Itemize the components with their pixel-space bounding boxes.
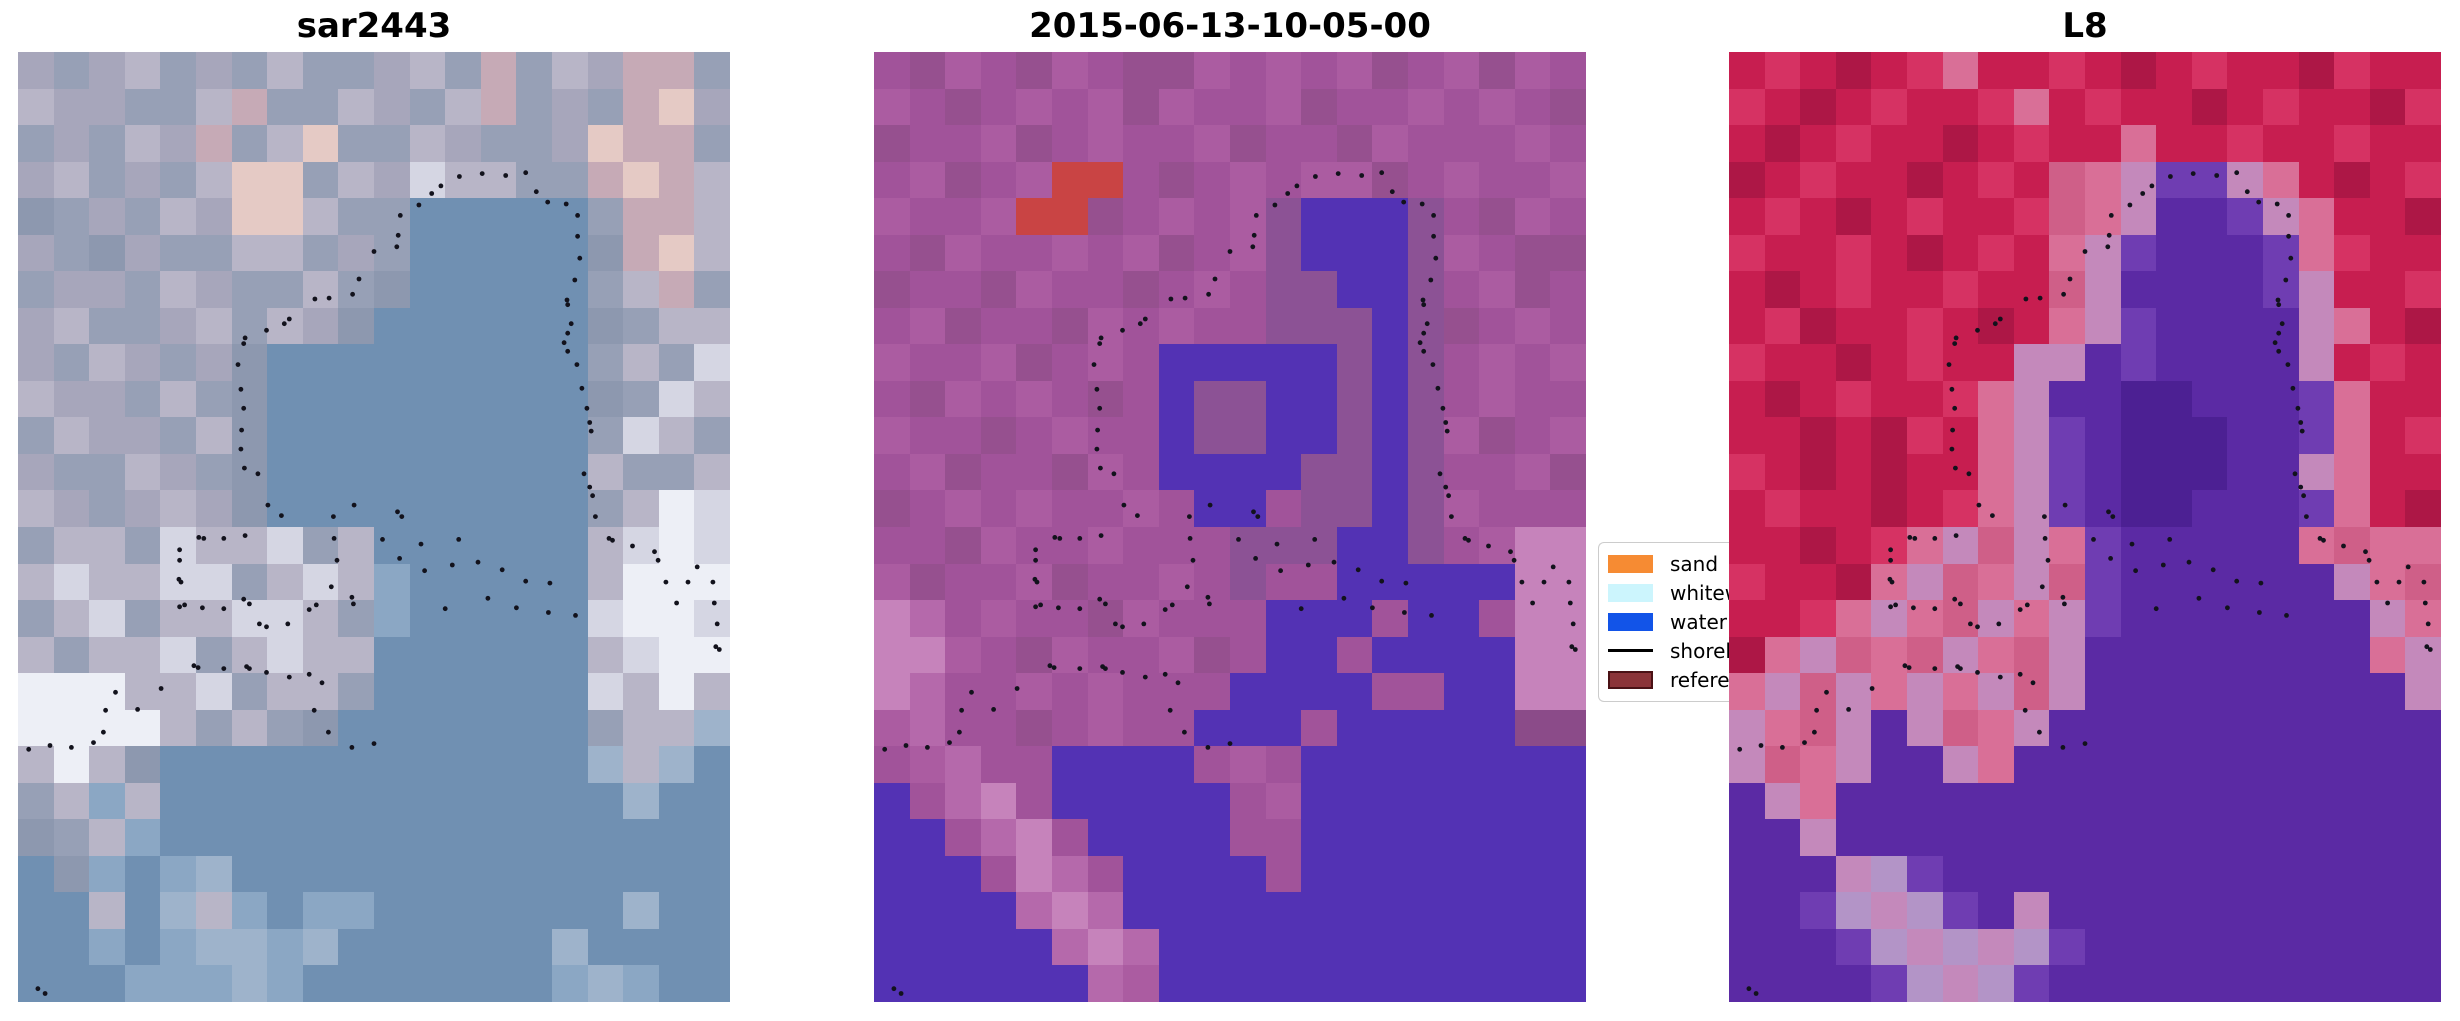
shoreline-dot bbox=[1888, 558, 1893, 563]
shoreline-dot bbox=[575, 362, 580, 367]
shoreline-dot bbox=[1932, 536, 1937, 541]
shoreline-dot bbox=[1169, 297, 1174, 302]
shoreline-dot bbox=[307, 672, 312, 677]
shoreline-dot bbox=[242, 466, 247, 471]
shoreline-dot bbox=[350, 745, 355, 750]
shoreline-dot bbox=[2130, 542, 2135, 547]
shoreline-dot bbox=[1512, 558, 1517, 563]
shoreline-dot bbox=[1431, 213, 1436, 218]
shoreline-dot bbox=[1952, 406, 1957, 411]
shoreline-dot bbox=[2341, 544, 2346, 549]
shoreline-dot bbox=[1275, 542, 1280, 547]
shoreline-dot bbox=[500, 567, 505, 572]
shoreline-dot bbox=[350, 292, 355, 297]
legend: sandwhitewwatershorelireferen bbox=[1598, 542, 1729, 702]
shoreline-dot bbox=[2211, 567, 2216, 572]
shoreline-dot bbox=[2042, 514, 2047, 519]
shoreline-dot bbox=[1206, 745, 1211, 750]
shoreline-dot bbox=[1188, 536, 1193, 541]
shoreline-dot bbox=[711, 580, 716, 585]
shoreline-dot bbox=[177, 547, 182, 552]
shoreline-dot bbox=[2367, 558, 2372, 563]
shoreline-dot bbox=[1567, 580, 1572, 585]
shoreline-dot bbox=[287, 675, 292, 680]
shoreline-dot bbox=[2046, 558, 2051, 563]
shoreline-dot bbox=[1207, 602, 1212, 607]
shoreline-dot bbox=[503, 173, 508, 178]
legend-label: sand bbox=[1670, 552, 1718, 576]
panel-title-sar2443: sar2443 bbox=[18, 5, 730, 47]
shoreline-dot bbox=[1441, 406, 1446, 411]
shoreline-dot bbox=[1098, 466, 1103, 471]
shoreline-dot bbox=[2063, 503, 2068, 508]
shoreline-dot bbox=[1907, 665, 1912, 670]
shoreline-dot bbox=[2280, 321, 2285, 326]
panel-l8 bbox=[1729, 52, 2441, 1002]
shoreline-dot bbox=[332, 536, 337, 541]
shoreline-dot bbox=[326, 730, 331, 735]
shoreline-dot bbox=[2025, 603, 2030, 608]
shoreline-dot bbox=[2273, 340, 2278, 345]
shoreline-dot bbox=[1402, 610, 1407, 615]
shoreline-dot bbox=[243, 533, 248, 538]
shoreline-dot bbox=[2375, 580, 2380, 585]
shoreline-dot bbox=[2068, 277, 2073, 282]
shoreline-dot bbox=[314, 603, 319, 608]
shoreline-dot bbox=[1033, 547, 1038, 552]
shoreline-dot bbox=[1038, 603, 1043, 608]
shoreline-dot bbox=[1846, 707, 1851, 712]
shoreline-dot bbox=[351, 602, 356, 607]
shoreline-dot bbox=[1278, 568, 1283, 573]
legend-label: shoreli bbox=[1670, 639, 1729, 663]
shoreline-dot bbox=[241, 597, 246, 602]
shoreline-dot bbox=[135, 707, 140, 712]
shoreline-dot bbox=[91, 740, 96, 745]
legend-swatch-shoreli bbox=[1608, 649, 1653, 653]
shoreline-dot bbox=[1433, 256, 1438, 261]
shoreline-dot bbox=[1814, 708, 1819, 713]
shoreline-dot bbox=[450, 563, 455, 568]
shoreline-dot bbox=[1122, 503, 1127, 508]
shoreline-dot bbox=[239, 447, 244, 452]
shoreline-dot bbox=[575, 213, 580, 218]
shoreline-dot bbox=[2023, 708, 2028, 713]
shoreline-dot bbox=[2276, 349, 2281, 354]
shoreline-dot bbox=[2061, 745, 2066, 750]
shoreline-dot bbox=[1449, 514, 1454, 519]
shoreline-dot bbox=[417, 203, 422, 208]
shoreline-dot bbox=[2128, 203, 2133, 208]
shoreline-dot bbox=[241, 406, 246, 411]
panel-classified-scene bbox=[874, 52, 1586, 1002]
shoreline-dots-overlay bbox=[18, 52, 730, 1002]
shoreline-dot bbox=[1135, 513, 1140, 518]
shoreline-dot bbox=[247, 666, 252, 671]
shoreline-dot bbox=[565, 331, 570, 336]
shoreline-dot bbox=[1052, 535, 1057, 540]
shoreline-dot bbox=[1099, 336, 1104, 341]
shoreline-dot bbox=[1095, 447, 1100, 452]
shoreline-dot bbox=[2259, 581, 2264, 586]
panel-title-l8: L8 bbox=[1729, 5, 2441, 47]
shoreline-dot bbox=[236, 362, 241, 367]
shoreline-dot bbox=[1077, 536, 1082, 541]
shoreline-dot bbox=[1379, 170, 1384, 175]
shoreline-dot bbox=[2286, 234, 2291, 239]
panel-sar2443 bbox=[18, 52, 730, 1002]
shoreline-dot bbox=[1870, 686, 1875, 691]
shoreline-dot bbox=[196, 665, 201, 670]
shoreline-dot bbox=[1143, 675, 1148, 680]
shoreline-dot bbox=[1998, 317, 2003, 322]
shoreline-dot bbox=[221, 666, 226, 671]
shoreline-dot bbox=[565, 298, 570, 303]
shoreline-dot bbox=[196, 535, 201, 540]
legend-label: whitew bbox=[1670, 581, 1729, 605]
shoreline-dot bbox=[1033, 604, 1038, 609]
shoreline-dot bbox=[192, 663, 197, 668]
shoreline-dot bbox=[1780, 745, 1785, 750]
shoreline-dot bbox=[177, 604, 182, 609]
shoreline-dot bbox=[177, 558, 182, 563]
shoreline-dot bbox=[589, 429, 594, 434]
legend-item: referen bbox=[1608, 665, 1729, 694]
shoreline-dot bbox=[1977, 503, 1982, 508]
shoreline-dot bbox=[1888, 604, 1893, 609]
shoreline-dot bbox=[1438, 471, 1443, 476]
shoreline-dot bbox=[1273, 203, 1278, 208]
shoreline-dot bbox=[1163, 672, 1168, 677]
shoreline-dot bbox=[1035, 580, 1040, 585]
shoreline-dot bbox=[1802, 740, 1807, 745]
shoreline-dot bbox=[456, 537, 461, 542]
shoreline-dot bbox=[2062, 602, 2067, 607]
shoreline-dot bbox=[1425, 321, 1430, 326]
figure-canvas: sar2443 2015-06-13-10-05-00 L8 sandwhite… bbox=[0, 0, 2460, 1021]
shoreline-dot bbox=[925, 745, 930, 750]
shoreline-dot bbox=[1252, 233, 1257, 238]
shoreline-dot bbox=[476, 560, 481, 565]
shoreline-dot bbox=[1206, 292, 1211, 297]
shoreline-dot bbox=[1508, 549, 1513, 554]
shoreline-dot bbox=[1953, 466, 1958, 471]
shoreline-dot bbox=[1255, 514, 1260, 519]
shoreline-dot bbox=[247, 602, 252, 607]
legend-swatch-referen bbox=[1608, 671, 1653, 689]
shoreline-dot bbox=[357, 277, 362, 282]
shoreline-dot bbox=[1208, 503, 1213, 508]
shoreline-dot bbox=[2385, 601, 2390, 606]
shoreline-dot bbox=[2024, 297, 2029, 302]
shoreline-dot bbox=[2105, 244, 2110, 249]
shoreline-dot bbox=[1103, 602, 1108, 607]
shoreline-dot bbox=[1445, 429, 1450, 434]
shoreline-dot bbox=[2428, 647, 2433, 652]
shoreline-dot bbox=[2061, 292, 2066, 297]
shoreline-dot bbox=[1253, 556, 1258, 561]
shoreline-dot bbox=[2301, 493, 2306, 498]
shoreline-dot bbox=[113, 690, 118, 695]
shoreline-dot bbox=[580, 386, 585, 391]
shoreline-dot bbox=[1095, 428, 1100, 433]
shoreline-dot bbox=[287, 317, 292, 322]
shoreline-dot bbox=[717, 647, 722, 652]
shoreline-dot bbox=[1932, 666, 1937, 671]
shoreline-dot bbox=[48, 743, 53, 748]
shoreline-dot bbox=[573, 613, 578, 618]
shoreline-dot bbox=[486, 596, 491, 601]
shoreline-dot bbox=[957, 730, 962, 735]
shoreline-dot bbox=[2363, 549, 2368, 554]
shoreline-dot bbox=[1998, 675, 2003, 680]
shoreline-dot bbox=[1967, 471, 1972, 476]
shoreline-dot bbox=[2298, 420, 2303, 425]
shoreline-dot bbox=[1182, 730, 1187, 735]
shoreline-dot bbox=[1143, 317, 1148, 322]
shoreline-dot bbox=[1436, 386, 1441, 391]
shoreline-dot bbox=[2397, 580, 2402, 585]
shoreline-dot bbox=[352, 503, 357, 508]
shoreline-dot bbox=[1996, 622, 2001, 627]
shoreline-dot bbox=[1993, 321, 1998, 326]
shoreline-dot bbox=[2286, 362, 2291, 367]
shoreline-dot bbox=[969, 690, 974, 695]
shoreline-dot bbox=[221, 606, 226, 611]
shoreline-dot bbox=[1336, 171, 1341, 176]
shoreline-dot bbox=[1421, 298, 1426, 303]
shoreline-dot bbox=[577, 256, 582, 261]
shoreline-dot bbox=[1737, 747, 1742, 752]
legend-label: referen bbox=[1670, 668, 1729, 692]
shoreline-dot bbox=[264, 670, 269, 675]
shoreline-dot bbox=[1390, 189, 1395, 194]
shoreline-dot bbox=[395, 509, 400, 514]
shoreline-dot bbox=[2423, 601, 2428, 606]
shoreline-dot bbox=[1170, 603, 1175, 608]
shoreline-dot bbox=[320, 680, 325, 685]
shoreline-dot bbox=[1120, 670, 1125, 675]
shoreline-dot bbox=[1057, 536, 1062, 541]
shoreline-dot bbox=[2133, 568, 2138, 573]
shoreline-dot bbox=[2257, 610, 2262, 615]
shoreline-dot bbox=[1250, 244, 1255, 249]
shoreline-dot bbox=[372, 741, 377, 746]
shoreline-dot bbox=[2018, 607, 2023, 612]
shoreline-dot bbox=[1759, 743, 1764, 748]
shoreline-dot bbox=[587, 420, 592, 425]
shoreline-dot bbox=[1958, 666, 1963, 671]
shoreline-dot bbox=[443, 606, 448, 611]
legend-swatch-whitew bbox=[1608, 584, 1653, 602]
shoreline-dot bbox=[1236, 537, 1241, 542]
shoreline-dot bbox=[2083, 741, 2088, 746]
shoreline-dot bbox=[1443, 420, 1448, 425]
shoreline-dot bbox=[1056, 605, 1061, 610]
shoreline-dot bbox=[630, 544, 635, 549]
shoreline-dot bbox=[2256, 200, 2261, 205]
shoreline-dot bbox=[1097, 341, 1102, 346]
shoreline-dot bbox=[2291, 386, 2296, 391]
shoreline-dot bbox=[565, 302, 570, 307]
shoreline-dot bbox=[1097, 406, 1102, 411]
shoreline-dot bbox=[546, 610, 551, 615]
shoreline-dot bbox=[715, 622, 720, 627]
shoreline-dot bbox=[2168, 174, 2173, 179]
shoreline-dot bbox=[1092, 362, 1097, 367]
shoreline-dot bbox=[1113, 622, 1118, 627]
shoreline-dot bbox=[1077, 606, 1082, 611]
shoreline-dot bbox=[1138, 321, 1143, 326]
shoreline-dot bbox=[514, 605, 519, 610]
shoreline-dot bbox=[1950, 387, 1955, 392]
shoreline-dot bbox=[329, 584, 334, 589]
shoreline-dot bbox=[2283, 278, 2288, 283]
legend-swatch-sand bbox=[1608, 555, 1653, 573]
shoreline-dot bbox=[396, 233, 401, 238]
shoreline-dot bbox=[2197, 596, 2202, 601]
shoreline-dot bbox=[380, 537, 385, 542]
shoreline-dot bbox=[480, 171, 485, 176]
shoreline-dot bbox=[312, 708, 317, 713]
shoreline-dot bbox=[656, 558, 661, 563]
shoreline-dot bbox=[256, 471, 261, 476]
shoreline-dot bbox=[2245, 189, 2250, 194]
shoreline-dot bbox=[101, 730, 106, 735]
shoreline-dot bbox=[1213, 277, 1218, 282]
shoreline-dot bbox=[2191, 171, 2196, 176]
shoreline-dot bbox=[1185, 584, 1190, 589]
shoreline-dot bbox=[1168, 708, 1173, 713]
shoreline-dot bbox=[1958, 602, 1963, 607]
shoreline-dot bbox=[2091, 537, 2096, 542]
shoreline-dot bbox=[2037, 730, 2042, 735]
shoreline-dot bbox=[695, 565, 700, 570]
shoreline-dot bbox=[264, 624, 269, 629]
shoreline-dot bbox=[1754, 991, 1759, 996]
shoreline-dot bbox=[1295, 184, 1300, 189]
shoreline-dot bbox=[664, 580, 669, 585]
shoreline-dot bbox=[429, 191, 434, 196]
shoreline-dot bbox=[1356, 567, 1361, 572]
legend-item: sand bbox=[1608, 549, 1729, 578]
shoreline-dot bbox=[674, 601, 679, 606]
shoreline-dot bbox=[899, 991, 904, 996]
shoreline-dot bbox=[1888, 547, 1893, 552]
shoreline-dot bbox=[1893, 603, 1898, 608]
legend-label: water bbox=[1670, 610, 1727, 634]
shoreline-dot bbox=[241, 341, 246, 346]
shoreline-dot bbox=[1975, 624, 1980, 629]
shoreline-dots-overlay bbox=[874, 52, 1586, 1002]
shoreline-dot bbox=[582, 471, 587, 476]
shoreline-dot bbox=[1254, 213, 1259, 218]
shoreline-dot bbox=[2167, 537, 2172, 542]
shoreline-dot bbox=[103, 708, 108, 713]
shoreline-dot bbox=[1097, 597, 1102, 602]
shoreline-dot bbox=[1428, 278, 1433, 283]
shoreline-dot bbox=[1954, 533, 1959, 538]
shoreline-dot bbox=[327, 296, 332, 301]
shoreline-dot bbox=[243, 336, 248, 341]
shoreline-dot bbox=[2106, 509, 2111, 514]
shoreline-dot bbox=[1421, 349, 1426, 354]
shoreline-dot bbox=[534, 189, 539, 194]
shoreline-dot bbox=[1890, 580, 1895, 585]
shoreline-dot bbox=[1573, 647, 1578, 652]
shoreline-dot bbox=[36, 986, 41, 991]
shoreline-dot bbox=[1163, 607, 1168, 612]
shoreline-dot bbox=[1443, 485, 1448, 490]
shoreline-dot bbox=[350, 595, 355, 600]
shoreline-dot bbox=[1907, 535, 1912, 540]
shoreline-dot bbox=[562, 340, 567, 345]
shoreline-dot bbox=[2426, 622, 2431, 627]
shoreline-dot bbox=[1429, 613, 1434, 618]
shoreline-dot bbox=[1932, 606, 1937, 611]
shoreline-dot bbox=[1120, 624, 1125, 629]
shoreline-dot bbox=[1095, 387, 1100, 392]
shoreline-dot bbox=[2107, 233, 2112, 238]
shoreline-dot bbox=[686, 580, 691, 585]
shoreline-dot bbox=[1950, 447, 1955, 452]
shoreline-dot bbox=[1191, 558, 1196, 563]
shoreline-dot bbox=[2150, 184, 2155, 189]
shoreline-dot bbox=[2110, 514, 2115, 519]
shoreline-dot bbox=[1228, 249, 1233, 254]
shoreline-dot bbox=[1313, 174, 1318, 179]
shoreline-dot bbox=[239, 387, 244, 392]
shoreline-dot bbox=[43, 991, 48, 996]
shoreline-dot bbox=[1990, 513, 1995, 518]
shoreline-dot bbox=[1975, 328, 1980, 333]
shoreline-dot bbox=[2154, 606, 2159, 611]
shoreline-dot bbox=[1431, 234, 1436, 239]
shoreline-dot bbox=[2225, 605, 2230, 610]
shoreline-dot bbox=[2187, 560, 2192, 565]
shoreline-dot bbox=[1421, 331, 1426, 336]
shoreline-dot bbox=[1968, 622, 1973, 627]
shoreline-dot bbox=[1299, 606, 1304, 611]
shoreline-dot bbox=[590, 493, 595, 498]
shoreline-dot bbox=[610, 538, 615, 543]
shoreline-dot bbox=[1404, 581, 1409, 586]
shoreline-dot bbox=[1952, 597, 1957, 602]
shoreline-dot bbox=[2040, 584, 2045, 589]
shoreline-dot bbox=[2276, 302, 2281, 307]
shoreline-dot bbox=[2298, 485, 2303, 490]
shoreline-dot bbox=[1332, 560, 1337, 565]
shoreline-dot bbox=[593, 514, 598, 519]
shoreline-dot bbox=[1206, 595, 1211, 600]
legend-swatch-water bbox=[1608, 613, 1653, 631]
shoreline-dot bbox=[1401, 200, 1406, 205]
shoreline-dot bbox=[1099, 533, 1104, 538]
shoreline-dot bbox=[2214, 173, 2219, 178]
shoreline-dot bbox=[587, 485, 592, 490]
shoreline-dot bbox=[1466, 538, 1471, 543]
shoreline-dot bbox=[1187, 514, 1192, 519]
shoreline-dot bbox=[266, 503, 271, 508]
shoreline-dot bbox=[182, 603, 187, 608]
shoreline-dots-overlay bbox=[1729, 52, 2441, 1002]
shoreline-dot bbox=[1486, 544, 1491, 549]
shoreline-dot bbox=[1542, 580, 1547, 585]
shoreline-dot bbox=[2284, 613, 2289, 618]
shoreline-dot bbox=[2300, 429, 2305, 434]
shoreline-dot bbox=[1911, 605, 1916, 610]
shoreline-dot bbox=[1251, 509, 1256, 514]
